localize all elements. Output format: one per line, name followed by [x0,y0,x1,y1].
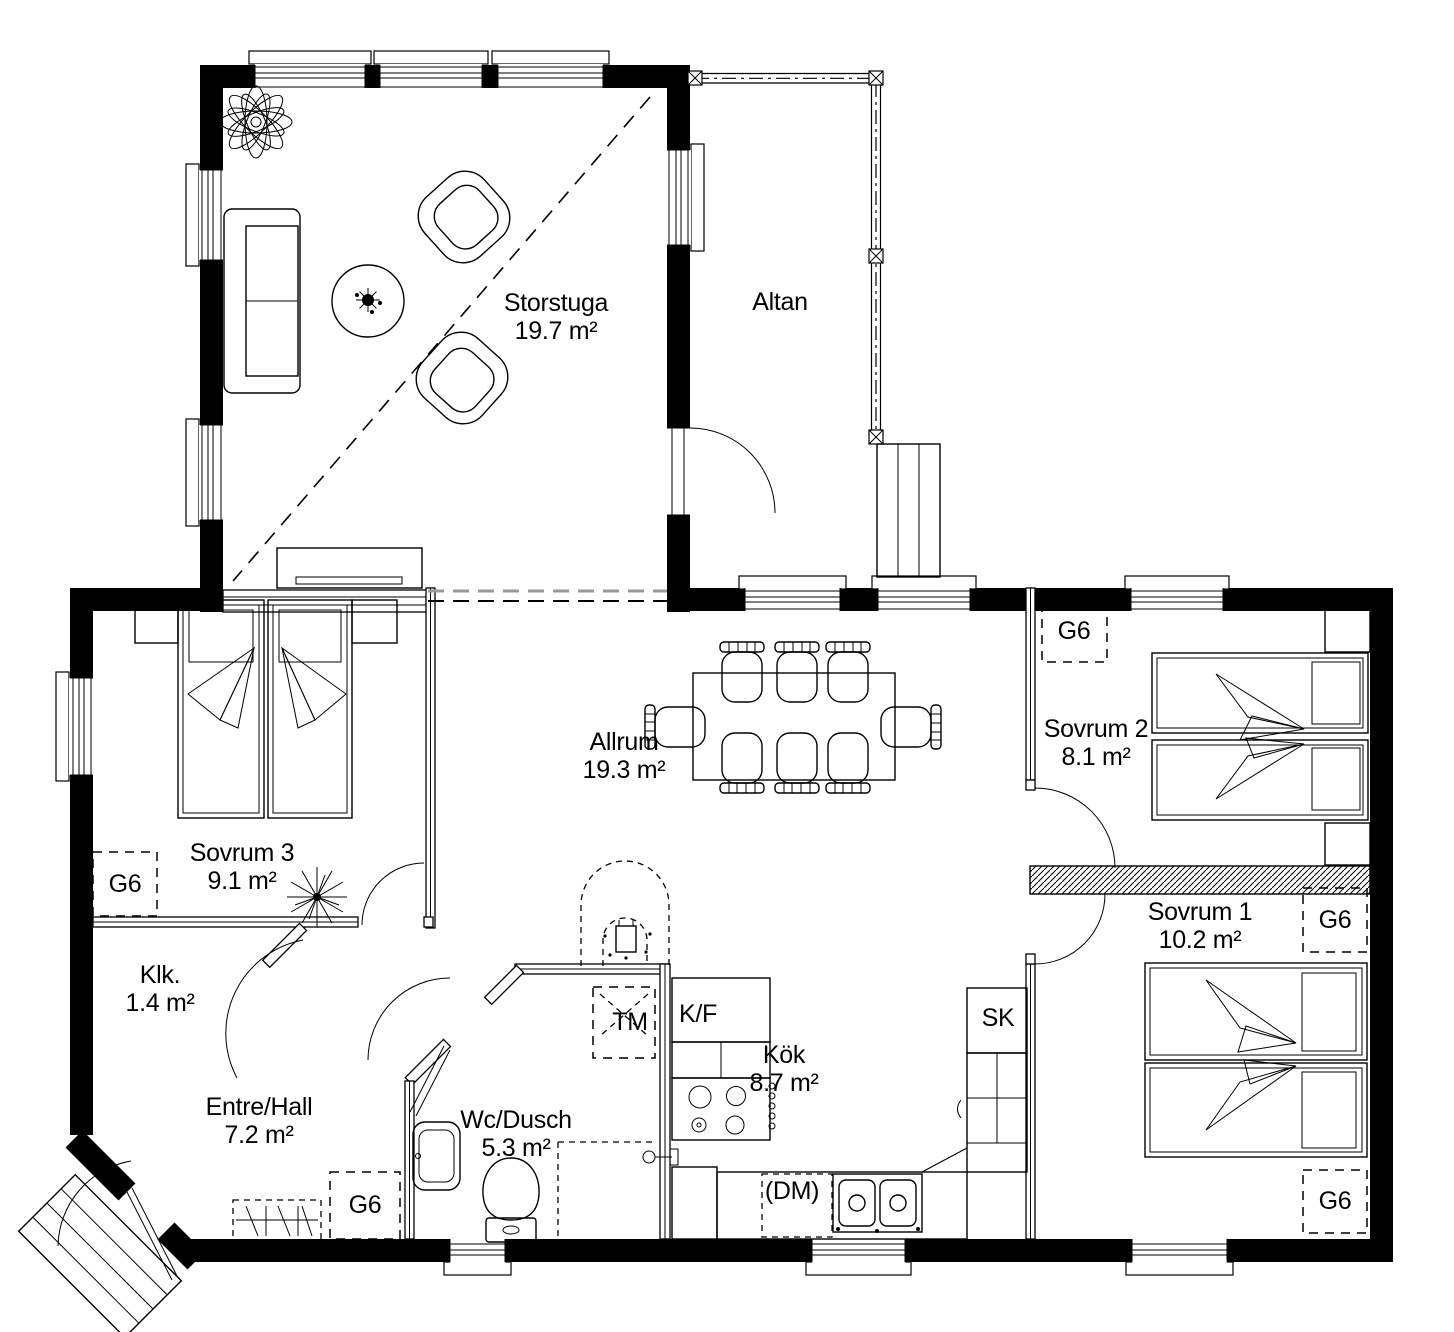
entrance-door [19,1161,182,1332]
nightstand [1325,610,1370,652]
window [1125,576,1229,612]
altan-railing [688,71,940,577]
room-label-wc: Wc/Dusch5.3 m² [460,1106,572,1162]
armchair [408,161,521,274]
window [56,672,94,781]
railing-post [869,430,883,444]
wardrobe-label-g6: G6 [1319,1187,1352,1215]
shower [558,1142,653,1239]
dining-chair [775,642,819,702]
bed [1145,963,1367,1060]
room-label-entre: Entre/Hall7.2 m² [206,1093,313,1149]
window [739,576,846,612]
counter [672,1167,717,1239]
cabinets [922,1053,1027,1172]
fireplace [581,861,669,966]
room-label-storstuga: Storstuga19.7 m² [504,289,608,345]
dining-chair [881,705,941,749]
washing-machine-label: TM [612,1008,648,1036]
room-label-kok: Kök8.7 m² [749,1041,818,1097]
wardrobe-label-g6: G6 [1319,906,1352,934]
dining-chair [720,733,764,793]
entrance-steps [19,1175,182,1332]
sofa [224,209,300,393]
corner-plant [220,86,292,158]
wardrobe-label-g6: G6 [109,870,142,898]
hat-rack [233,1200,321,1240]
sovrum3-door-arc [362,863,424,925]
sink [833,1174,922,1233]
window [186,419,224,526]
room-label-sovrum1: Sovrum 110.2 m² [1148,898,1253,954]
room-label-sovrum2: Sovrum 28.1 m² [1044,715,1149,771]
window [806,1238,911,1275]
dining-table [693,673,895,780]
dining-chair [826,642,870,702]
window [249,51,371,89]
tall-cabinet-label: SK [982,1004,1015,1032]
sideboard [277,548,422,588]
dining-chair [826,733,870,793]
nightstand [1325,823,1370,865]
dining-set [645,642,941,793]
window [1126,1238,1233,1275]
sovrum1-door-arc [1035,894,1105,964]
altan-stairs [877,444,940,577]
wardrobe-label-g6: G6 [1058,617,1091,645]
window [444,1238,511,1275]
railing-post [688,71,702,85]
window [186,164,224,266]
dishwasher-label: (DM) [765,1177,819,1205]
toilet [483,1158,539,1242]
window [374,51,488,89]
room-label-allrum: Allrum19.3 m² [583,728,666,784]
bed [1152,738,1368,820]
window [666,144,704,251]
wardrobe-label-g6: G6 [349,1191,382,1219]
window [872,576,976,612]
washbasin [413,1122,460,1190]
fridge-freezer-label: K/F [679,1000,717,1028]
sovrum2-door-arc [1035,788,1115,868]
room-label-sovrum3: Sovrum 39.1 m² [190,839,295,895]
doors [19,428,1115,1332]
room-label-klk: Klk.1.4 m² [125,961,194,1017]
window [492,51,609,89]
room-label-altan: Altan [752,288,807,316]
bed [268,600,352,818]
railing-post [869,249,883,263]
altan-door [666,428,775,515]
storstuga-furniture [220,86,520,588]
bed [1145,1060,1367,1157]
table-plant [355,288,382,314]
bed [1152,653,1368,740]
armchair [406,322,519,435]
railing-post [869,71,883,85]
dining-chair [720,642,764,702]
floorplan: Storstuga19.7 m² Altan Allrum19.3 m² Sov… [0,0,1454,1332]
dining-chair [775,733,819,793]
bed [178,600,264,818]
